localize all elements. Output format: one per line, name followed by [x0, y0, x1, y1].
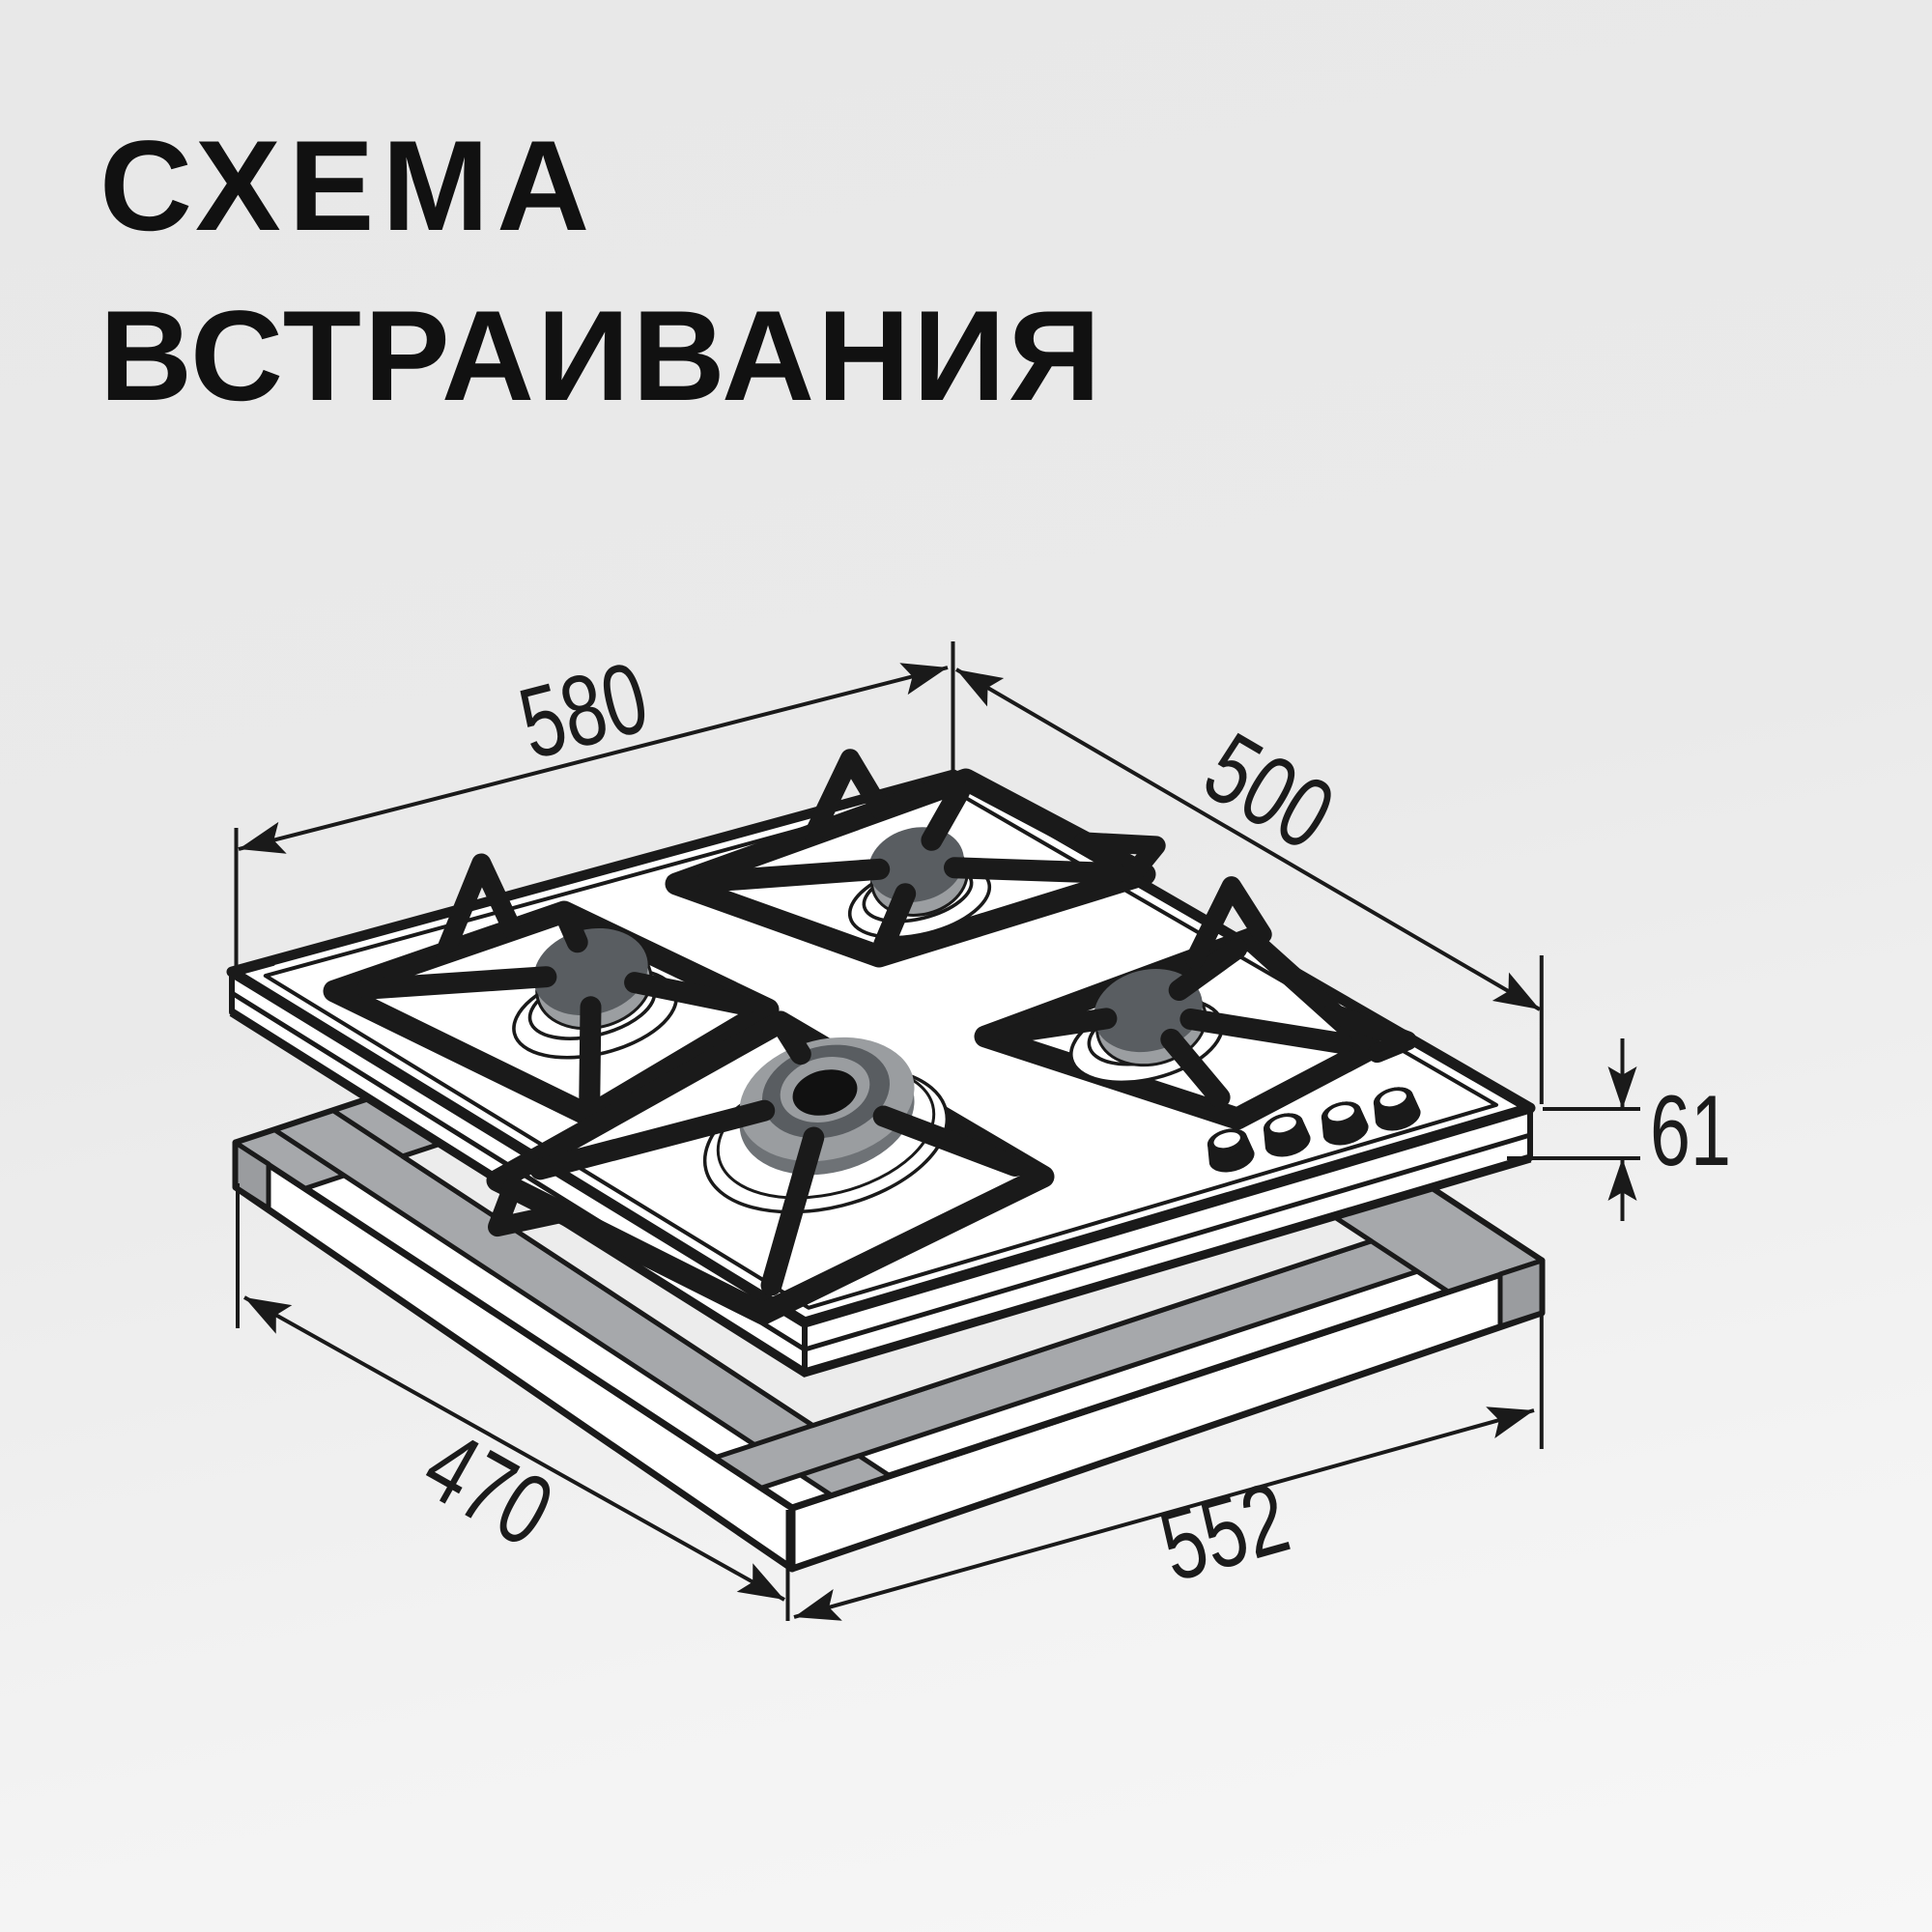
- svg-text:ВСТРАИВАНИЯ: ВСТРАИВАНИЯ: [99, 285, 1103, 428]
- svg-text:61: 61: [1650, 1075, 1731, 1187]
- svg-text:500: 500: [1186, 712, 1351, 872]
- svg-text:580: 580: [509, 641, 659, 781]
- svg-text:СХЕМА: СХЕМА: [99, 115, 597, 258]
- svg-text:470: 470: [406, 1409, 570, 1569]
